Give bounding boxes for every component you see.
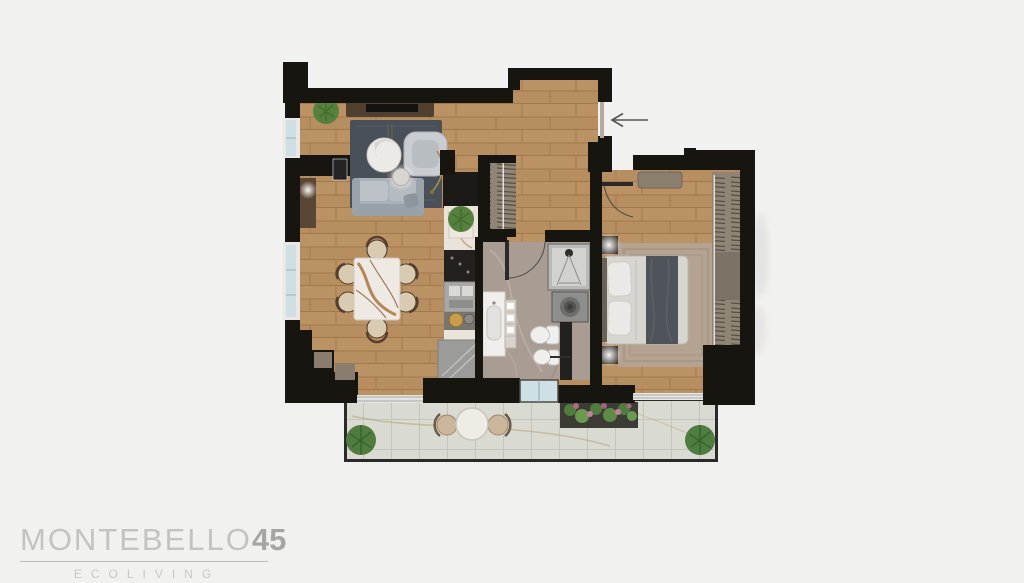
storage-box bbox=[335, 363, 355, 380]
entry-closet bbox=[490, 163, 516, 229]
closet-led bbox=[503, 163, 504, 229]
entry-arrow bbox=[612, 114, 648, 127]
washing-machine bbox=[552, 292, 588, 322]
floor-plan bbox=[0, 0, 1024, 583]
kitchen-bath-divider bbox=[475, 237, 483, 380]
window-left-2 bbox=[283, 242, 300, 320]
bathroom-top-wall-right bbox=[545, 230, 590, 242]
brand-divider bbox=[20, 561, 268, 562]
balcony-chair-right bbox=[488, 415, 508, 435]
window-living-south bbox=[357, 395, 423, 403]
kitchen-cabinet-dark bbox=[444, 250, 478, 282]
shower bbox=[548, 244, 590, 290]
kitchen bbox=[438, 172, 480, 380]
vestibule-floor bbox=[513, 80, 598, 108]
top-wall bbox=[300, 88, 513, 103]
flower-planter bbox=[560, 402, 638, 428]
right-wall bbox=[740, 158, 755, 405]
dining-table bbox=[354, 258, 400, 320]
brand-logo: MONTEBELLO45 ECOLIVING bbox=[20, 524, 270, 581]
bush-right bbox=[685, 425, 715, 455]
bathroom-door bbox=[505, 240, 509, 280]
headboard bbox=[602, 258, 607, 342]
plumbing-wall bbox=[560, 322, 572, 380]
bottom-wall-kitchen bbox=[423, 378, 520, 403]
window-bedroom-south bbox=[633, 393, 703, 400]
bathroom-bedroom-wall bbox=[590, 142, 602, 403]
shelf-niche bbox=[505, 300, 516, 348]
cooktop bbox=[444, 312, 478, 330]
page: MONTEBELLO45 ECOLIVING bbox=[0, 0, 1024, 583]
entry-door bbox=[600, 102, 604, 138]
brand-name: MONTEBELLO bbox=[20, 522, 252, 557]
tv bbox=[366, 104, 418, 112]
vestibule-right-wall bbox=[598, 68, 612, 102]
window-left-1 bbox=[283, 118, 300, 158]
shoe-cabinet bbox=[314, 352, 332, 368]
console-lamp-glow bbox=[299, 181, 317, 199]
kitchen-island bbox=[438, 340, 480, 380]
bedroom-door bbox=[602, 182, 633, 186]
toilet bbox=[531, 326, 560, 344]
balcony bbox=[344, 398, 718, 462]
pillow bbox=[607, 261, 632, 296]
vanity bbox=[483, 292, 505, 356]
coffee-table bbox=[393, 169, 410, 186]
brand-number: 45 bbox=[252, 522, 286, 557]
kitchen-sink bbox=[444, 282, 478, 312]
balcony-table bbox=[456, 408, 488, 440]
kitchen-tall-unit bbox=[443, 172, 478, 208]
bush-left bbox=[346, 425, 376, 455]
vestibule-top-wall bbox=[508, 68, 612, 80]
kitchen-wall-stub bbox=[440, 150, 455, 175]
pillow2 bbox=[607, 301, 631, 336]
balcony-glass-door bbox=[520, 380, 558, 402]
wall-tv bbox=[333, 159, 347, 180]
bedroom-bench bbox=[638, 172, 682, 188]
plant-kitchen bbox=[448, 206, 474, 238]
closet-wall bbox=[478, 163, 490, 229]
brand-wordmark: MONTEBELLO45 bbox=[20, 524, 270, 555]
double-bed bbox=[602, 256, 688, 344]
brand-tagline: ECOLIVING bbox=[20, 567, 268, 581]
balcony-chair-left bbox=[437, 415, 457, 435]
left-wall bbox=[285, 88, 300, 120]
